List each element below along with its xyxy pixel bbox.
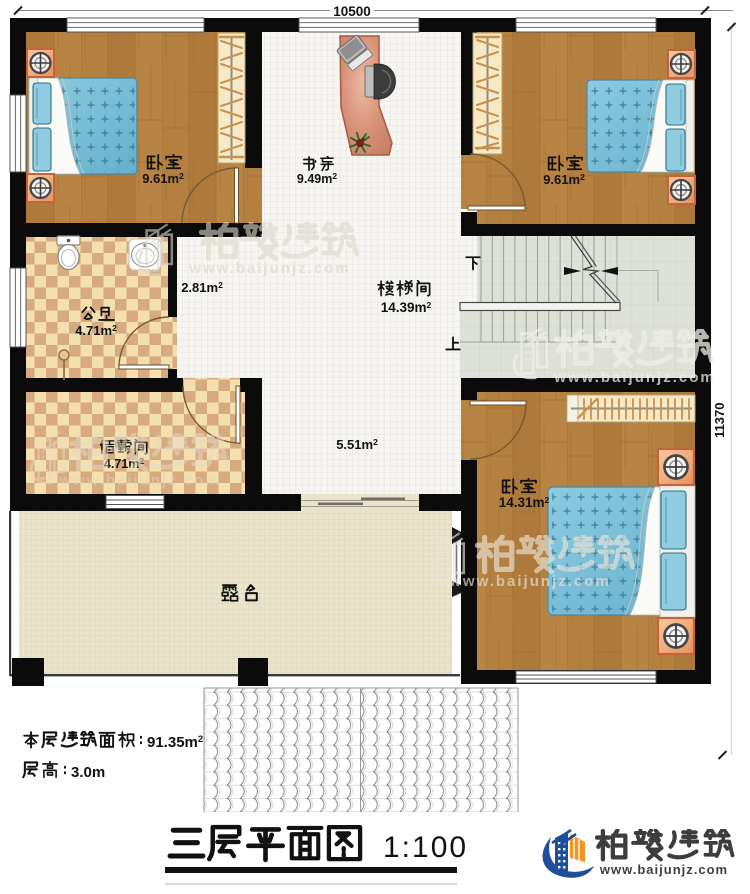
- svg-text:9.61m2: 9.61m2: [543, 172, 585, 187]
- svg-text:www.baijunjz.com: www.baijunjz.com: [188, 260, 350, 277]
- svg-text:5.51m2: 5.51m2: [336, 437, 378, 452]
- svg-text:4.71m2: 4.71m2: [75, 323, 117, 338]
- svg-text:14.31m2: 14.31m2: [499, 495, 550, 510]
- svg-text:9.61m2: 9.61m2: [142, 171, 184, 186]
- svg-text:1:100: 1:100: [383, 831, 468, 864]
- svg-text:91.35m2: 91.35m2: [147, 734, 203, 751]
- svg-text:www.baijunjz.com: www.baijunjz.com: [553, 369, 715, 386]
- svg-text:www.baijunjz.com: www.baijunjz.com: [599, 862, 728, 877]
- svg-text:10500: 10500: [333, 4, 371, 19]
- svg-text:3.0m: 3.0m: [71, 764, 105, 781]
- svg-text:www.baijunjz.com: www.baijunjz.com: [58, 472, 220, 489]
- svg-text:www.baijunjz.com: www.baijunjz.com: [448, 573, 610, 590]
- svg-text:9.49m2: 9.49m2: [297, 171, 337, 186]
- svg-text:14.39m2: 14.39m2: [381, 300, 432, 315]
- svg-text:11370: 11370: [712, 403, 727, 438]
- svg-text:2.81m2: 2.81m2: [181, 280, 223, 295]
